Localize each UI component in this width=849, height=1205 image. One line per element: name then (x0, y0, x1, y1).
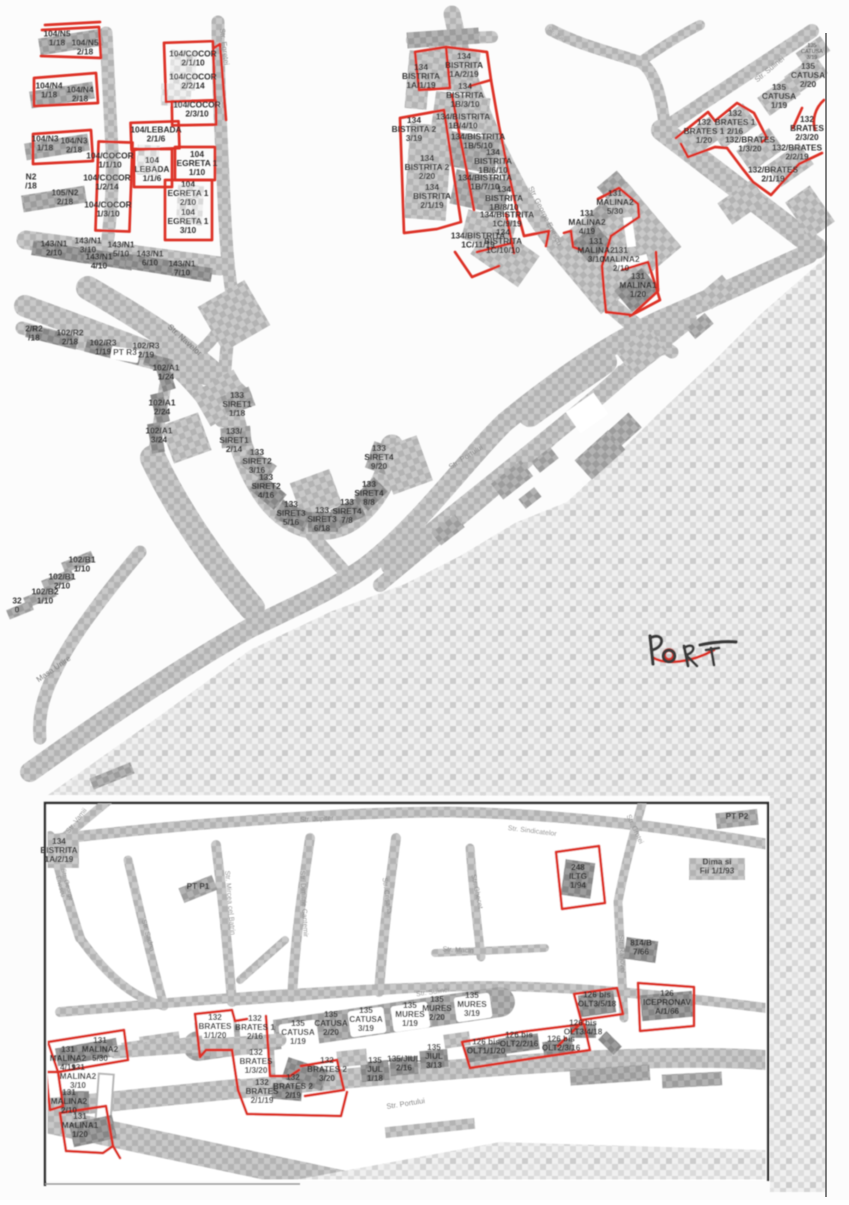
svg-text:N2/18: N2/18 (25, 172, 37, 191)
svg-text:126 bisOLT3/5/18: 126 bisOLT3/5/18 (578, 991, 617, 1009)
svg-text:PT P1: PT P1 (187, 882, 210, 891)
svg-text:135JIUL3/13: 135JIUL3/13 (425, 1043, 443, 1070)
svg-text:135JUL1/18: 135JUL1/18 (367, 1056, 383, 1083)
svg-text:126 bisOLT2/2/16: 126 bisOLT2/2/16 (500, 1031, 539, 1049)
svg-text:126 bisOLT2/3/16: 126 bisOLT2/3/16 (542, 1035, 581, 1053)
svg-text:Dima siFii 1/1/93: Dima siFii 1/1/93 (700, 858, 735, 876)
svg-text:126 bisOLT1/1/20: 126 bisOLT1/1/20 (467, 1038, 506, 1056)
svg-text:248ILTG1/94: 248ILTG1/94 (569, 863, 587, 890)
svg-text:PT P2: PT P2 (726, 812, 749, 821)
svg-text:814/B7/66: 814/B7/66 (630, 939, 652, 957)
